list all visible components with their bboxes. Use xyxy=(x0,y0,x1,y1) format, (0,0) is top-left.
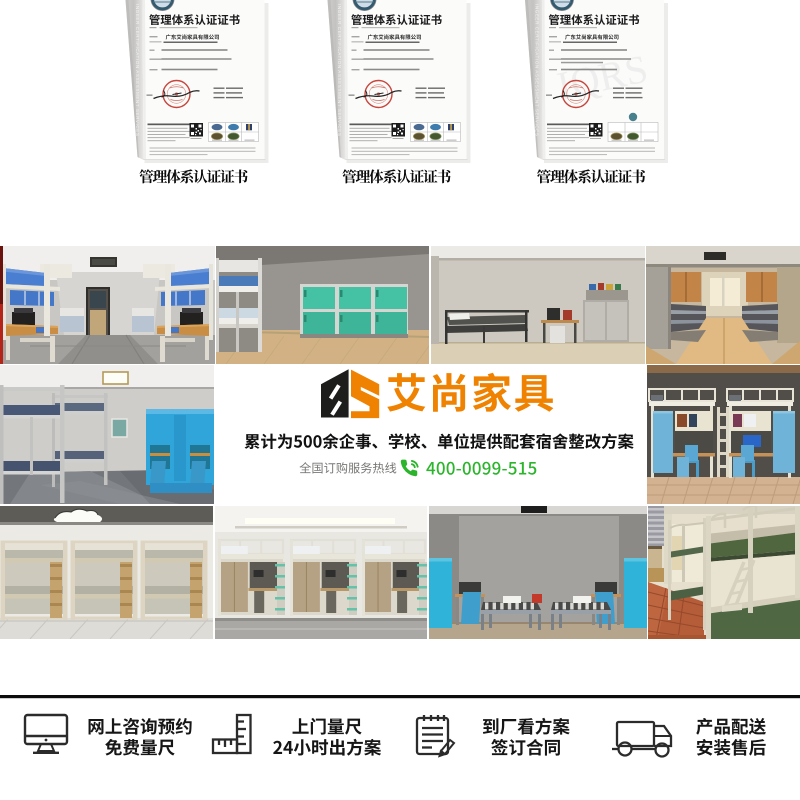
svg-text:INGEER CERTIFICATION ASSESSMEN: INGEER CERTIFICATION ASSESSMENT SERVICES xyxy=(337,4,342,136)
svg-text:INGEER CERTIFICATION ASSESSMEN: INGEER CERTIFICATION ASSESSMENT SERVICES xyxy=(135,4,140,136)
svg-text:INGEER CERTIFICATION ASSESSMEN: INGEER CERTIFICATION ASSESSMENT SERVICES xyxy=(535,4,540,136)
